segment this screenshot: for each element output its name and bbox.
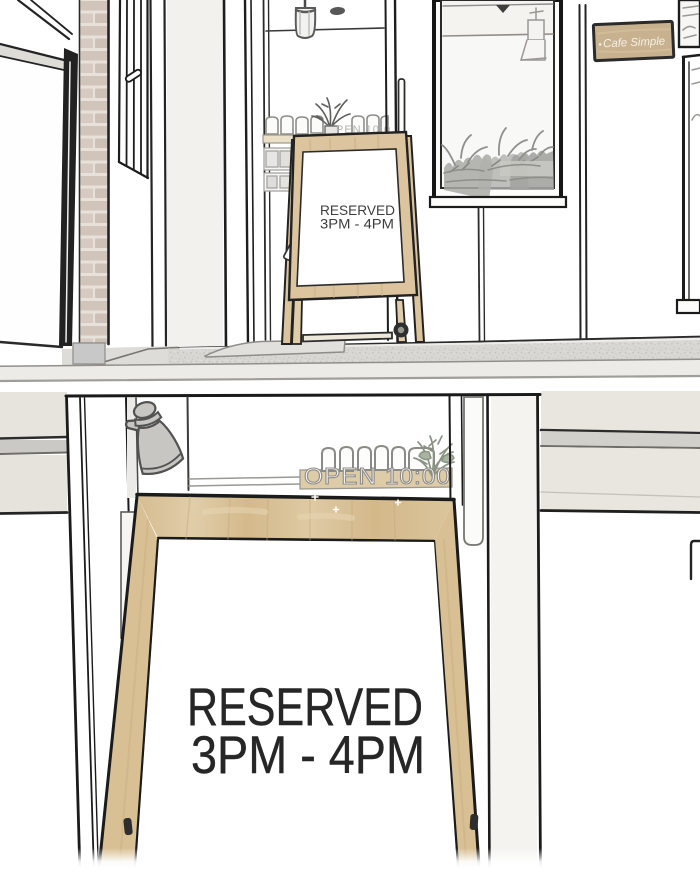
svg-text:3PM - 4PM: 3PM - 4PM xyxy=(191,726,425,785)
svg-text:OPEN 10:00: OPEN 10:00 xyxy=(304,463,451,489)
svg-text:3PM - 4PM: 3PM - 4PM xyxy=(320,216,394,232)
